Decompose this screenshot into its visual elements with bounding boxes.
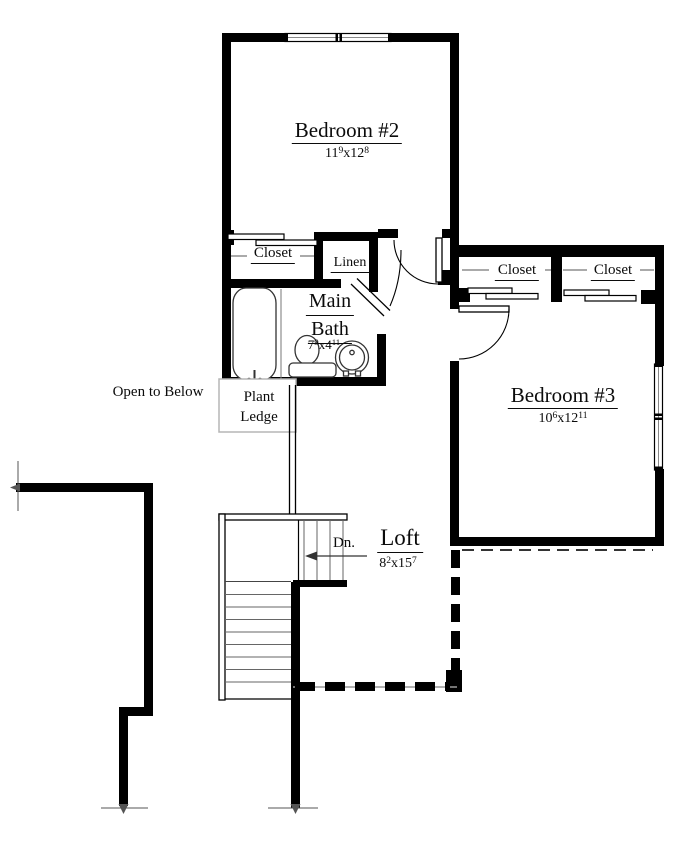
wall-bedroom2-east bbox=[450, 33, 459, 309]
dn-arrow bbox=[305, 552, 367, 561]
sink-basin-inner bbox=[340, 345, 365, 370]
wall-closet-jamb-right bbox=[641, 290, 655, 304]
toilet-tank bbox=[289, 363, 336, 377]
main-bath-label: Main Bath bbox=[306, 288, 354, 344]
open-to-below-label: Open to Below bbox=[113, 384, 204, 401]
wall-bedroom3-west-lower bbox=[450, 361, 459, 537]
bath-door-arc bbox=[390, 250, 401, 306]
bathtub bbox=[233, 288, 276, 380]
bedroom3-closet-right-label: Closet bbox=[591, 262, 635, 281]
loft-label: Loft bbox=[377, 525, 423, 553]
bedroom3-door-leaf bbox=[459, 306, 509, 312]
bedroom3-closet-right-door-panel bbox=[585, 296, 636, 302]
wall-bedroom2-bottom-right-jamb bbox=[442, 229, 459, 238]
window-mullion bbox=[340, 34, 343, 41]
wall-bedroom3-top bbox=[453, 245, 664, 257]
plant-ledge-label: Plant Ledge bbox=[240, 388, 277, 427]
window-cap bbox=[388, 34, 392, 41]
wall-linen-right bbox=[369, 232, 378, 292]
bedroom3-closet-left-door-panel bbox=[486, 294, 538, 300]
window-cap bbox=[655, 363, 662, 367]
bedroom3-door bbox=[459, 306, 509, 359]
bedroom3-closet-right-door-panel bbox=[564, 290, 609, 296]
dashed-walls bbox=[293, 550, 653, 687]
bedroom2-window bbox=[284, 34, 392, 42]
bedroom3-door-arc bbox=[459, 309, 509, 359]
window-mullion bbox=[655, 414, 662, 417]
wall-left-wing-lower bbox=[119, 707, 128, 806]
bedroom2-dimensions: 119x128 bbox=[325, 146, 369, 162]
dn-arrow-head bbox=[305, 552, 317, 561]
stair-west-wall bbox=[219, 514, 225, 700]
bedroom2-closet-door-panel bbox=[228, 234, 284, 240]
bedroom3-window bbox=[655, 363, 663, 471]
stairs bbox=[219, 514, 347, 700]
centerline-arrow bbox=[119, 804, 129, 814]
stair-mid-wall bbox=[293, 580, 347, 587]
linen-closet-label: Linen bbox=[331, 255, 370, 273]
wall-bedroom3-east-lower bbox=[655, 469, 664, 546]
sink-faucet-handle bbox=[356, 371, 361, 376]
wall-west bbox=[222, 33, 231, 386]
bedroom2-door bbox=[394, 238, 442, 284]
bedroom2-closet-label: Closet bbox=[251, 245, 295, 264]
bedroom3-dimensions: 106x1211 bbox=[539, 411, 588, 427]
stairs-down-label: Dn. bbox=[333, 535, 355, 552]
wall-closet-row-bottom bbox=[222, 279, 341, 288]
window-cap bbox=[655, 467, 662, 471]
stair-treads-lower bbox=[225, 595, 291, 683]
bedroom2-name: Bedroom #2 bbox=[292, 118, 402, 144]
wall-closet-divider bbox=[551, 257, 562, 302]
centerline-arrow bbox=[10, 484, 20, 492]
window-mullion bbox=[655, 418, 662, 421]
wall-linen-top bbox=[314, 232, 378, 241]
wall-stair-east bbox=[291, 582, 300, 808]
sink-drain bbox=[350, 350, 354, 354]
sliding-doors bbox=[222, 230, 636, 301]
floor-plan-page: Bedroom #2 119x128 Closet Linen Main Bat… bbox=[0, 0, 692, 842]
bedroom2-door-leaf bbox=[436, 238, 442, 282]
loft-dimensions: 82x157 bbox=[379, 556, 417, 572]
bedroom3-closet-left-door-panel bbox=[468, 288, 512, 294]
bedroom2-label: Bedroom #2 bbox=[292, 118, 402, 144]
bedroom3-name: Bedroom #3 bbox=[508, 383, 618, 409]
wall-bedroom3-bottom bbox=[450, 537, 664, 546]
wall-left-wing-top bbox=[16, 483, 153, 492]
sink-faucet-handle bbox=[344, 371, 349, 376]
wall-left-wing-east bbox=[144, 483, 153, 716]
main-bath-dimensions: 79x411 bbox=[308, 338, 340, 353]
bedroom3-closet-left-label: Closet bbox=[495, 262, 539, 281]
wall-bedroom2-bottom-left-jamb bbox=[378, 229, 398, 238]
window-cap bbox=[284, 34, 288, 41]
window-mullion bbox=[336, 34, 339, 41]
bedroom3-label: Bedroom #3 bbox=[508, 383, 618, 409]
wall-bedroom3-east-upper bbox=[655, 245, 664, 366]
stair-top-wall bbox=[219, 514, 347, 520]
loft-name: Loft bbox=[377, 525, 423, 553]
centerline-arrow bbox=[291, 804, 301, 814]
